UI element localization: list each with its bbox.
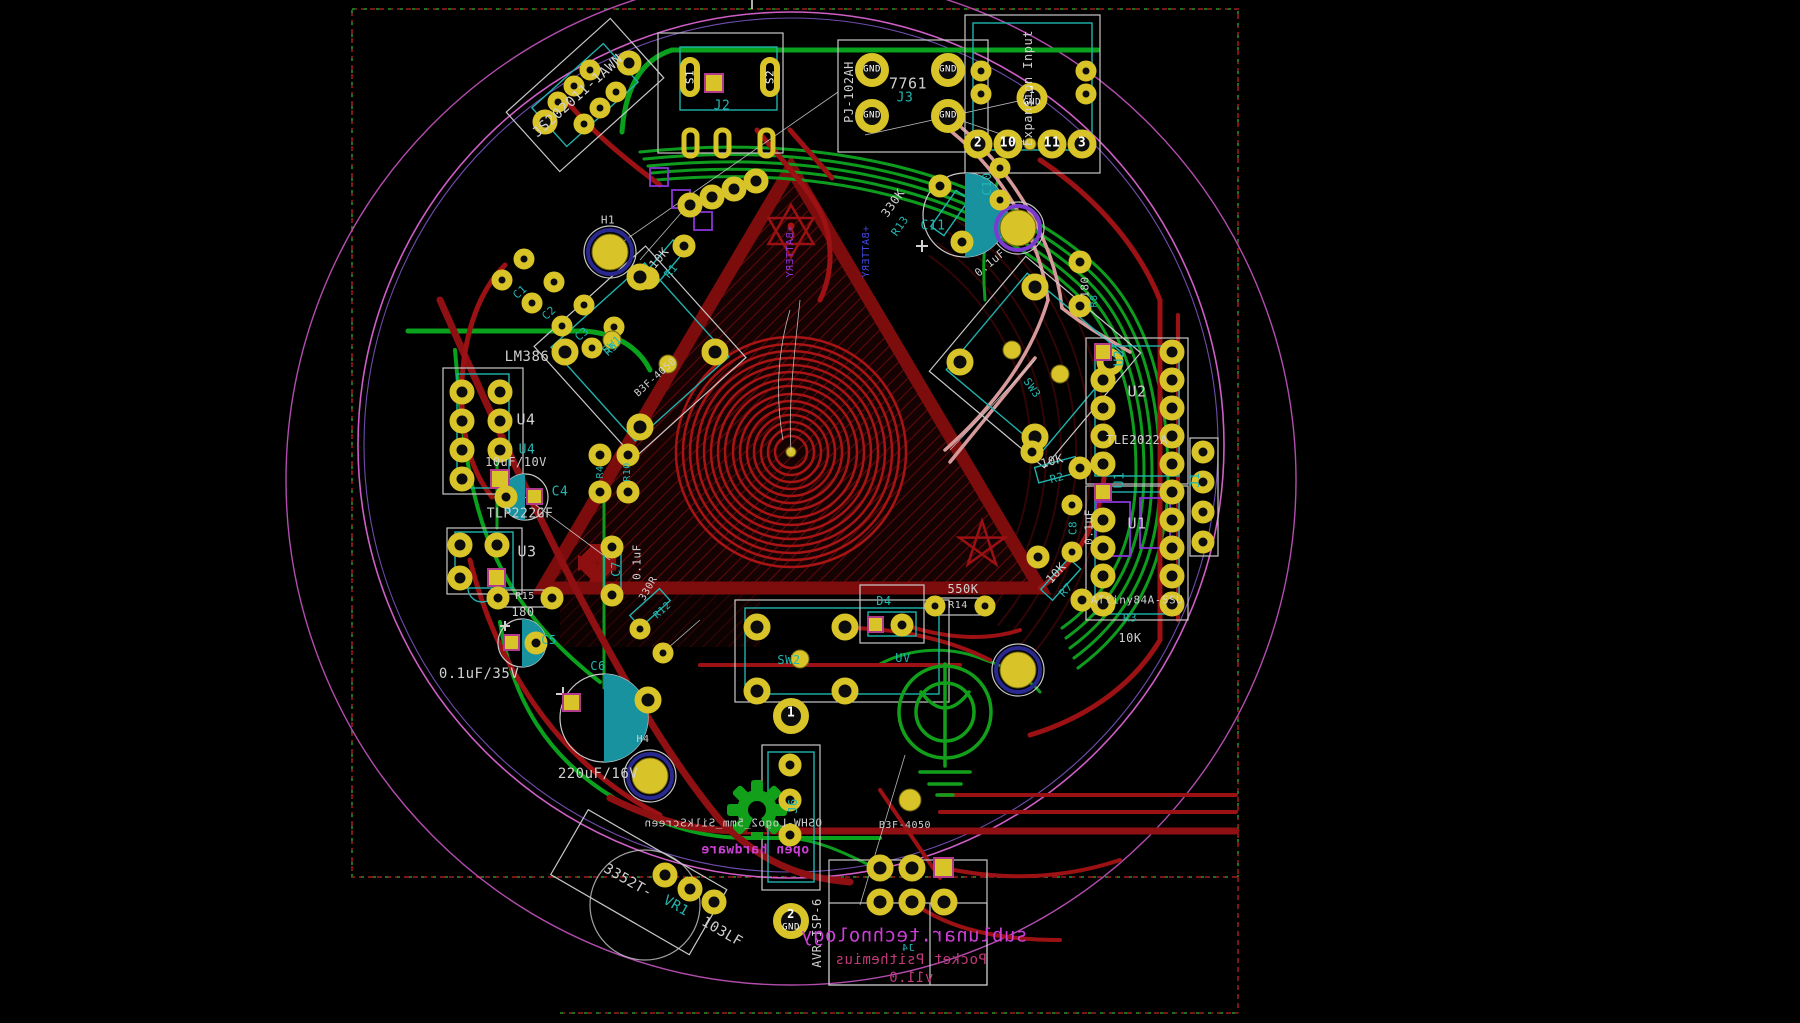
earth-symbol-art: [899, 664, 991, 795]
pcb-graphics: [0, 0, 1800, 1023]
pcb-editor-canvas: JS202011-1AWNS1S2J2PJ-102AH7761J3GNDGNDG…: [0, 0, 1800, 1023]
oshw-logo-icon: [727, 780, 787, 840]
